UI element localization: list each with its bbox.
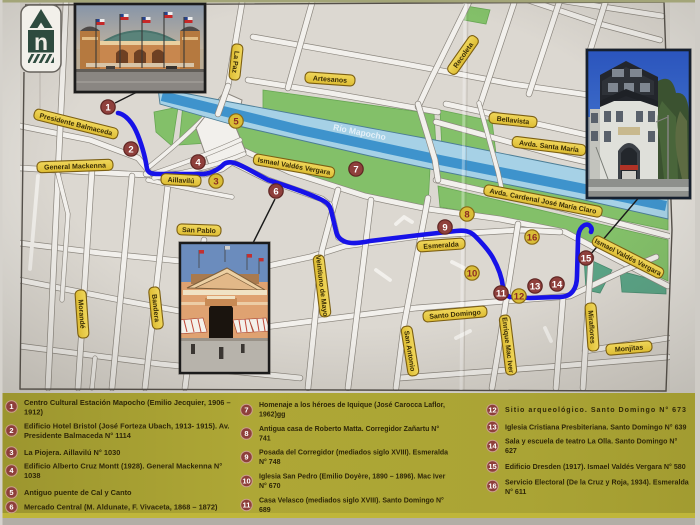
svg-text:10: 10 xyxy=(242,477,250,486)
svg-text:Edificio Dresden (1917). Ismae: Edificio Dresden (1917). Ismael Valdés V… xyxy=(505,463,686,471)
svg-text:16: 16 xyxy=(488,482,496,491)
svg-text:5: 5 xyxy=(233,117,239,128)
svg-text:8: 8 xyxy=(464,210,469,221)
svg-text:15: 15 xyxy=(488,462,496,471)
svg-text:13: 13 xyxy=(488,423,496,432)
svg-text:10: 10 xyxy=(467,269,478,280)
svg-text:Antiguo puente de Cal y Canto: Antiguo puente de Cal y Canto xyxy=(24,488,132,497)
svg-text:15: 15 xyxy=(581,254,592,265)
svg-text:6: 6 xyxy=(9,503,13,512)
svg-text:12: 12 xyxy=(514,292,525,303)
svg-text:1: 1 xyxy=(105,103,111,114)
svg-text:3: 3 xyxy=(9,448,13,457)
svg-text:2: 2 xyxy=(128,145,133,156)
svg-text:n: n xyxy=(34,29,48,55)
svg-text:San Pablo: San Pablo xyxy=(182,227,216,235)
svg-text:5: 5 xyxy=(9,488,13,497)
svg-text:9: 9 xyxy=(244,453,248,462)
svg-text:6: 6 xyxy=(273,187,278,198)
svg-text:1: 1 xyxy=(9,402,13,411)
svg-text:3: 3 xyxy=(213,177,218,188)
svg-text:La Piojera. Aillavilú N° 1030: La Piojera. Aillavilú N° 1030 xyxy=(24,448,120,457)
svg-text:2: 2 xyxy=(9,426,13,435)
svg-text:12: 12 xyxy=(488,406,496,415)
svg-text:Sitio arqueológico. Santo Domi: Sitio arqueológico. Santo Domingo N° 673 xyxy=(505,406,687,414)
svg-text:Iglesia Cristiana Presbiterian: Iglesia Cristiana Presbiteriana. Santo D… xyxy=(505,424,686,432)
svg-text:14: 14 xyxy=(552,280,563,291)
svg-text:11: 11 xyxy=(496,289,507,300)
svg-text:7: 7 xyxy=(353,165,358,176)
svg-text:7: 7 xyxy=(244,406,248,415)
svg-text:14: 14 xyxy=(488,442,497,451)
svg-text:Mercado Central (M. Aldunate,: Mercado Central (M. Aldunate, F. Vivacet… xyxy=(24,503,218,512)
svg-text:16: 16 xyxy=(527,233,538,244)
svg-text:8: 8 xyxy=(244,429,248,438)
svg-text:13: 13 xyxy=(530,282,541,293)
svg-text:4: 4 xyxy=(195,158,201,169)
svg-text:Aillavilú: Aillavilú xyxy=(167,177,194,185)
svg-text:11: 11 xyxy=(243,501,251,510)
svg-text:9: 9 xyxy=(442,223,447,234)
